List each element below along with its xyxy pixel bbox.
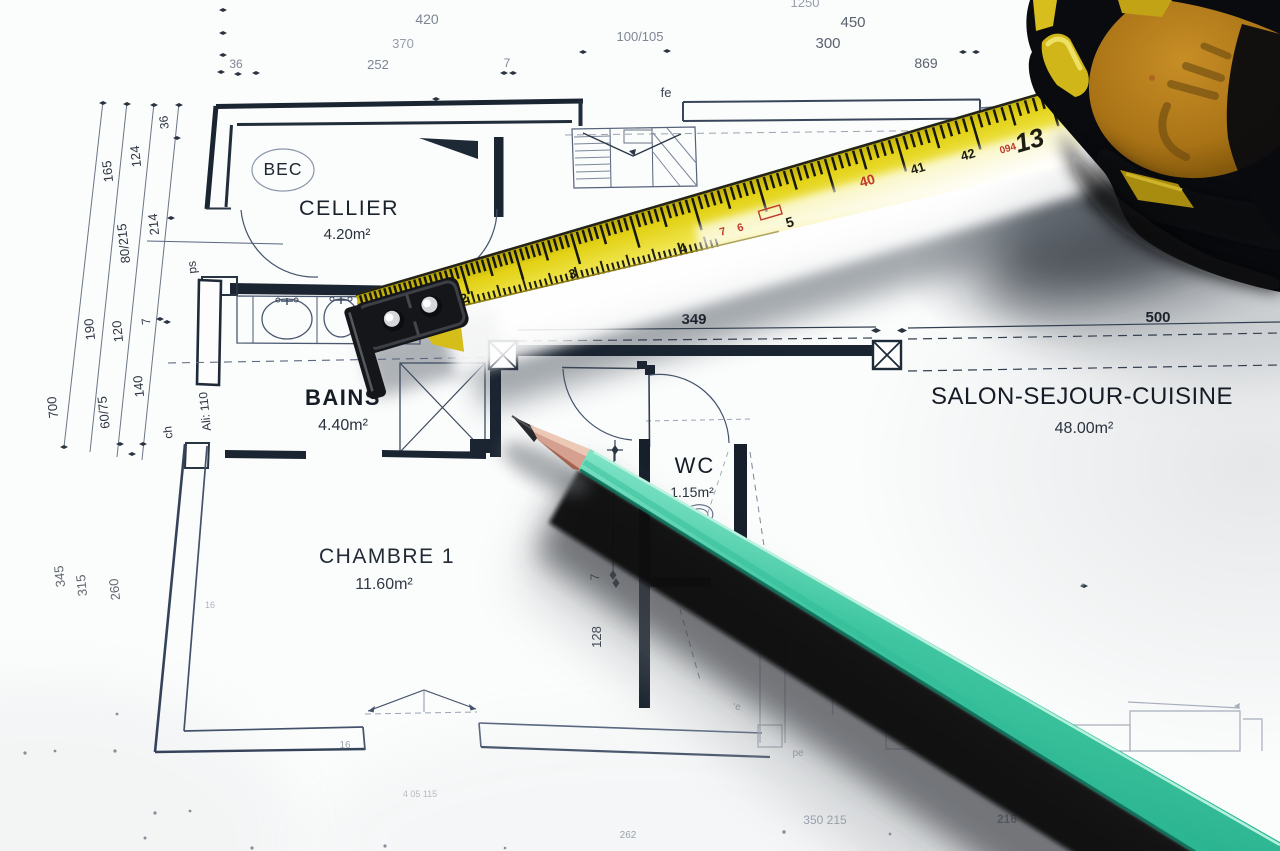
svg-text:1.15m²: 1.15m² <box>670 484 714 500</box>
svg-text:120: 120 <box>109 320 126 343</box>
svg-text:48.00m²: 48.00m² <box>1055 420 1114 437</box>
svg-text:869: 869 <box>914 55 938 71</box>
svg-text:349: 349 <box>681 311 706 328</box>
svg-text:WC: WC <box>675 453 716 478</box>
svg-text:4.20m²: 4.20m² <box>324 226 371 243</box>
svg-text:300: 300 <box>815 35 840 52</box>
svg-text:16: 16 <box>205 600 215 610</box>
svg-text:1250: 1250 <box>791 0 820 10</box>
svg-text:7: 7 <box>504 56 511 70</box>
svg-text:16: 16 <box>339 740 351 751</box>
svg-text:SALON-SEJOUR-CUISINE: SALON-SEJOUR-CUISINE <box>931 383 1233 410</box>
svg-text:4.40m²: 4.40m² <box>318 417 368 434</box>
svg-text:214: 214 <box>145 213 162 236</box>
svg-text:450: 450 <box>840 14 865 31</box>
svg-text:420: 420 <box>415 11 439 27</box>
svg-text:315: 315 <box>73 574 90 597</box>
svg-text:36: 36 <box>229 57 243 71</box>
svg-text:700: 700 <box>44 396 61 419</box>
svg-text:252: 252 <box>367 57 389 72</box>
svg-text:ch: ch <box>160 425 175 439</box>
svg-text:36: 36 <box>156 115 171 130</box>
svg-text:260: 260 <box>106 578 123 601</box>
svg-text:370: 370 <box>392 36 414 51</box>
svg-text:190: 190 <box>81 318 98 341</box>
svg-text:100/105: 100/105 <box>617 29 664 44</box>
svg-text:11.60m²: 11.60m² <box>355 576 413 593</box>
svg-text:345: 345 <box>51 565 68 588</box>
svg-text:165: 165 <box>99 160 116 183</box>
svg-text:fe: fe <box>661 85 672 100</box>
svg-text:140: 140 <box>130 375 147 398</box>
svg-text:4 05 115: 4 05 115 <box>403 789 437 799</box>
svg-text:BEC: BEC <box>264 159 303 179</box>
svg-text:CHAMBRE 1: CHAMBRE 1 <box>319 545 455 568</box>
svg-text:ps: ps <box>184 260 199 274</box>
svg-text:CELLIER: CELLIER <box>299 196 399 220</box>
svg-text:500: 500 <box>1145 309 1170 326</box>
svg-text:262: 262 <box>620 830 637 841</box>
svg-text:124: 124 <box>127 145 144 168</box>
